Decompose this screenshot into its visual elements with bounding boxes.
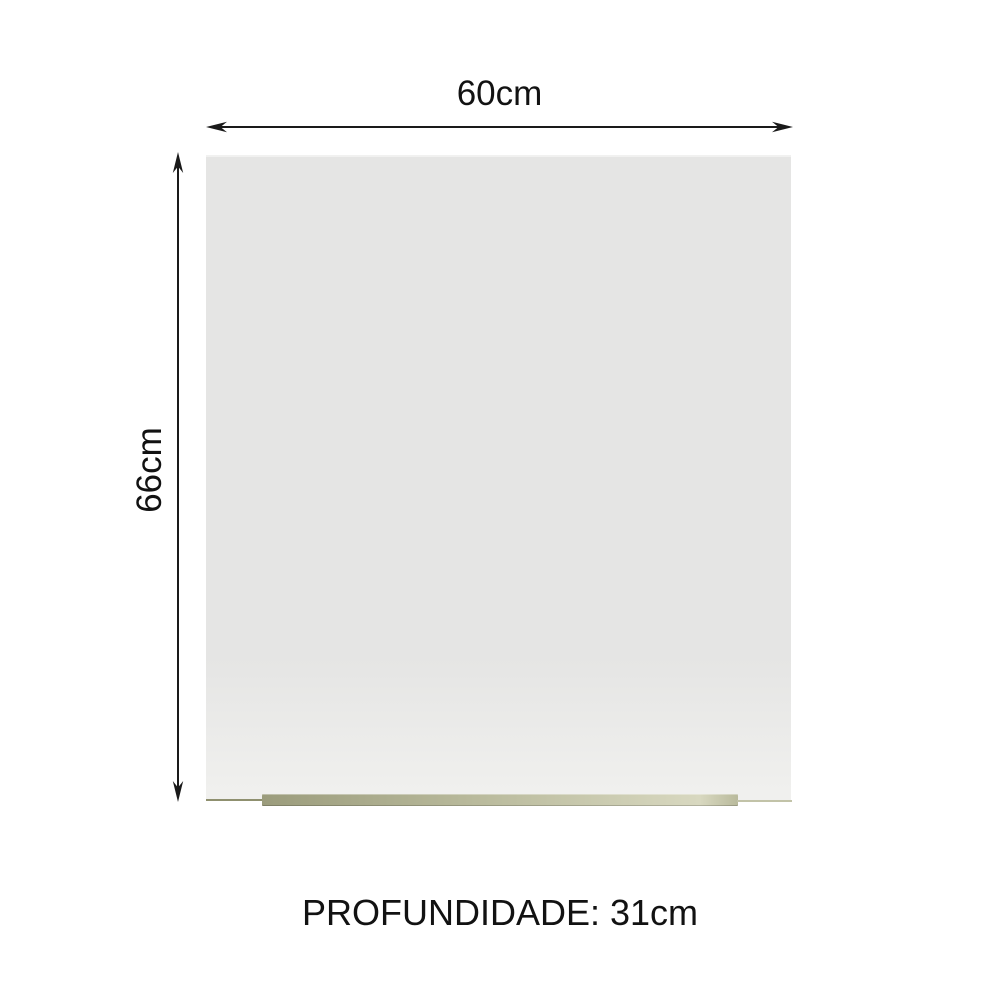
height-dimension-label: 66cm: [130, 427, 170, 513]
depth-dimension-label: PROFUNDIDADE: 31cm: [0, 892, 1000, 934]
product-dimension-diagram: 60cm 66cm PROFUNDIDADE: 31cm: [0, 0, 1000, 1000]
handle-edge-left: [206, 799, 263, 801]
width-arrow-icon: [206, 120, 793, 134]
door-handle-bar: [262, 794, 738, 806]
height-arrow-icon: [171, 152, 185, 802]
cabinet-door-panel: [206, 155, 791, 800]
handle-edge-right: [737, 800, 792, 802]
width-dimension-label: 60cm: [206, 74, 793, 114]
